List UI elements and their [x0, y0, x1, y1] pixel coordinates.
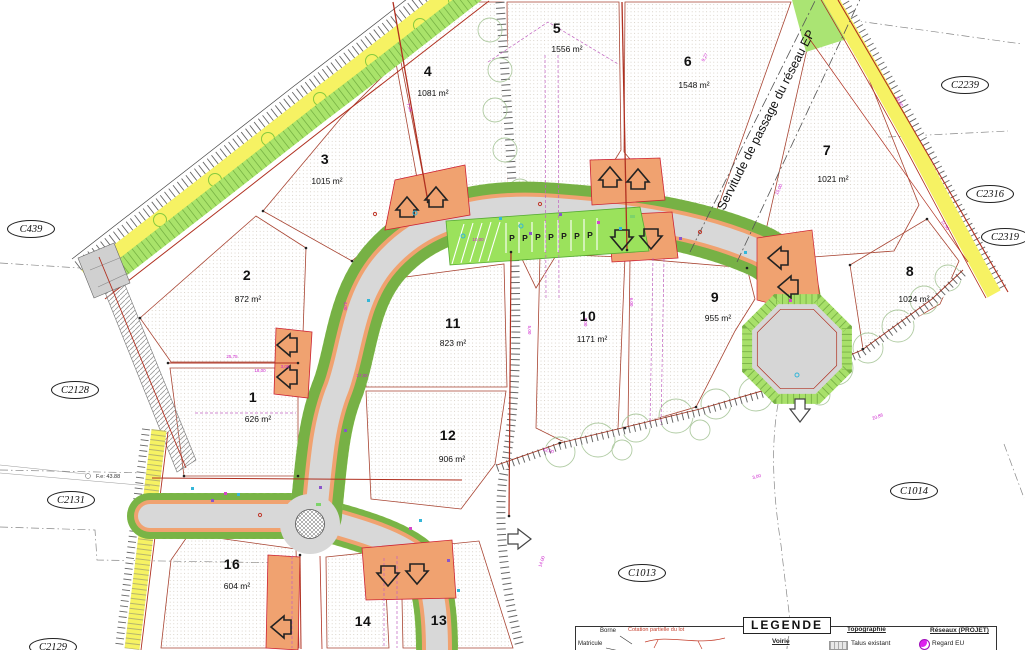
lot-number: 8: [906, 263, 914, 279]
svg-text:17,00: 17,00: [356, 373, 368, 378]
lot-area: 1021 m²: [817, 174, 848, 184]
plan-canvas: P P P P P P P: [0, 0, 1025, 650]
lot-area: 823 m²: [440, 338, 466, 348]
lot-area: 604 m²: [224, 581, 250, 591]
svg-text:6,00: 6,00: [629, 298, 634, 307]
parking-p: P: [574, 231, 580, 241]
legend-topographie-label: Topographie: [847, 626, 886, 633]
parcel-ref: C2131: [47, 491, 95, 509]
svg-text:5,00: 5,00: [527, 326, 532, 335]
svg-text:3,00: 3,00: [281, 364, 290, 369]
flow-arrow-icon: [508, 529, 531, 549]
legend-title: LEGENDE: [743, 617, 831, 634]
legend-sample-sketch: [600, 634, 770, 650]
lot-number: 13: [431, 612, 448, 628]
svg-text:18,00: 18,00: [254, 368, 266, 373]
lot-number: 14: [355, 613, 372, 629]
lot-area: 955 m²: [705, 313, 731, 323]
lot-number: 3: [321, 151, 329, 167]
svg-text:10,00: 10,00: [472, 237, 484, 242]
lot-area: 906 m²: [439, 454, 465, 464]
legend-talus-label: Talus existant: [851, 640, 890, 647]
parking-p: P: [587, 230, 593, 240]
lot-area: 872 m²: [235, 294, 261, 304]
lot-number: 1: [249, 389, 257, 405]
lot-number: 5: [553, 20, 561, 36]
lot-number: 10: [580, 308, 597, 324]
regard-eu-icon: [919, 639, 930, 650]
path-band-southwest: [119, 429, 168, 650]
lot-area: 1081 m²: [417, 88, 448, 98]
parcel-ref: C2239: [941, 76, 989, 94]
lot-number: 6: [684, 53, 692, 69]
level-note-leaders: [0, 465, 150, 486]
parcel-ref: C2319: [981, 228, 1025, 246]
parcel-ref: C2316: [966, 185, 1014, 203]
lot-area: 1024 m²: [898, 294, 929, 304]
lot-area: 1548 m²: [678, 80, 709, 90]
lot-number: 7: [823, 142, 831, 158]
site-plan-drawing: P P P P P P P: [0, 0, 1025, 650]
svg-text:14,00: 14,00: [537, 555, 545, 568]
legend-matricule-label: Matricule: [578, 641, 602, 647]
lot-number: 4: [424, 63, 432, 79]
parcel-ref: C1014: [890, 482, 938, 500]
parcel-ref: C2128: [51, 381, 99, 399]
svg-text:20,86: 20,86: [871, 412, 884, 421]
parking-p: P: [522, 233, 528, 243]
lot-area: 1015 m²: [311, 176, 342, 186]
lot-area: 1556 m²: [551, 44, 582, 54]
lot-number: 12: [440, 427, 457, 443]
parking-p: P: [548, 232, 554, 242]
parcel-ref: C2129: [29, 638, 77, 650]
svg-text:3,00: 3,00: [752, 473, 762, 480]
lot-number: 16: [224, 556, 241, 572]
parking-p: P: [535, 232, 541, 242]
lot-number: 11: [445, 315, 461, 331]
legend-cotation-label: Cotation partielle du lot: [628, 627, 684, 633]
lot-area: 1171 m²: [577, 334, 608, 344]
svg-text:4,00: 4,00: [343, 302, 348, 311]
lot-number: 2: [243, 267, 251, 283]
legend-voirie-label: Voirie: [772, 638, 790, 645]
legend-regard-label: Regard EU: [932, 640, 964, 647]
legend-reseaux-label: Réseaux (PROJET): [930, 627, 989, 634]
roundabout: [280, 494, 340, 554]
parking-p: P: [561, 231, 567, 241]
svg-text:25,75: 25,75: [226, 354, 238, 359]
talus-existant-icon: [829, 641, 848, 650]
parcel-ref: C1013: [618, 564, 666, 582]
parcel-ref: C439: [7, 220, 55, 238]
level-note: F.e: 43.88: [96, 474, 120, 480]
parking-p: P: [509, 233, 515, 243]
lot-number: 9: [711, 289, 719, 305]
lot-area: 626 m²: [245, 414, 271, 424]
